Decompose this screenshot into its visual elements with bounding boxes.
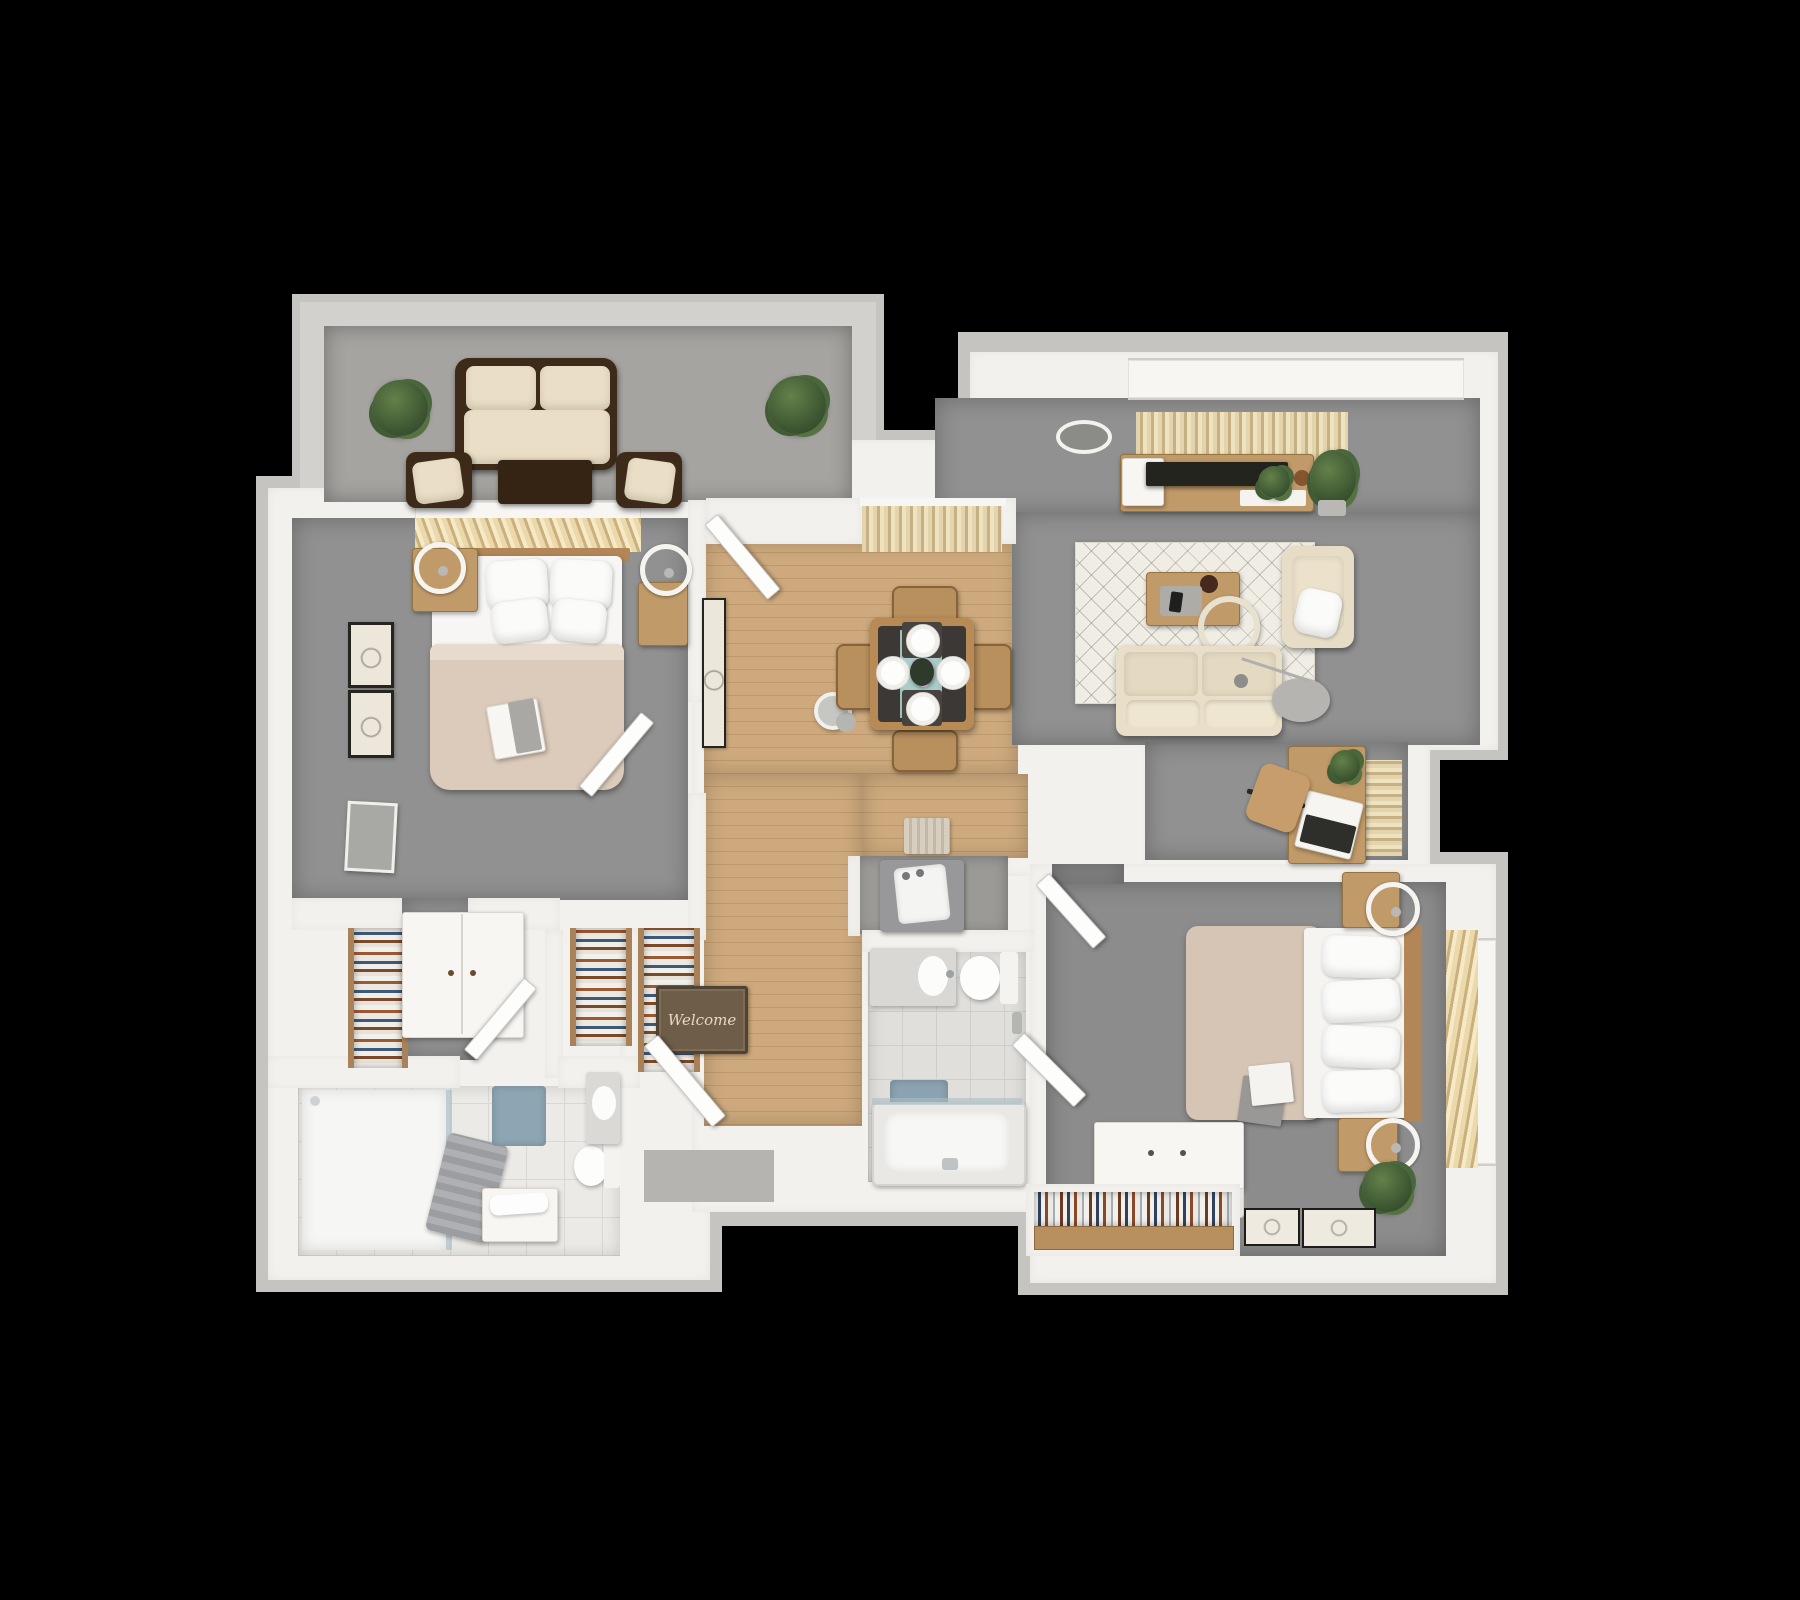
dresser-seam bbox=[461, 914, 463, 1034]
toilet-2 bbox=[960, 956, 1000, 1000]
welcome-mat-text: Welcome bbox=[668, 1011, 736, 1029]
wall bbox=[688, 793, 706, 940]
bed2-pillow bbox=[1321, 1024, 1401, 1070]
balcony-wall bbox=[300, 302, 876, 328]
place-setting-bottom bbox=[906, 692, 940, 726]
flower-vase bbox=[910, 658, 934, 686]
bath-mat bbox=[492, 1086, 546, 1146]
toilet-tank bbox=[604, 1140, 620, 1188]
plant-pot bbox=[1318, 500, 1346, 516]
entry-stoop bbox=[644, 1150, 774, 1202]
duvet-fold bbox=[430, 644, 624, 660]
second-bedroom-doorway bbox=[1052, 864, 1124, 884]
ceiling-light bbox=[1056, 420, 1112, 454]
floor-frame-small bbox=[1244, 1208, 1300, 1246]
shower-head bbox=[310, 1096, 320, 1106]
welcome-mat: Welcome bbox=[656, 986, 748, 1054]
wall bbox=[292, 898, 402, 930]
washer-knob bbox=[916, 869, 924, 877]
bed-pillow bbox=[490, 597, 551, 646]
woven-mat bbox=[904, 818, 950, 854]
toilet bbox=[574, 1146, 608, 1186]
dining-wall-art bbox=[702, 598, 726, 748]
bed2-headboard bbox=[1404, 926, 1422, 1122]
arc-lamp-head bbox=[1234, 674, 1248, 688]
wall-art-top bbox=[348, 622, 394, 688]
sofa-back-cushion bbox=[1124, 652, 1198, 696]
place-setting-right bbox=[936, 656, 970, 690]
bed2-pillow bbox=[1321, 978, 1401, 1024]
toilet-tank-2 bbox=[1000, 952, 1018, 1004]
ring-lamp-right bbox=[640, 544, 692, 596]
sink-2 bbox=[918, 956, 948, 996]
desk-plant bbox=[1330, 750, 1360, 782]
window-blinds bbox=[1446, 930, 1478, 1168]
balcony-wall bbox=[300, 302, 326, 512]
console-plant bbox=[1258, 466, 1290, 498]
closet-bookshelf bbox=[1034, 1192, 1232, 1226]
bed2-pillow bbox=[1321, 1069, 1400, 1114]
pendant-light-shade bbox=[836, 712, 856, 732]
tall-plant bbox=[1310, 450, 1356, 506]
bed-pillow bbox=[550, 597, 608, 644]
tub-faucet bbox=[942, 1158, 958, 1170]
washer-knob bbox=[902, 872, 910, 880]
outdoor-coffee-table bbox=[498, 460, 592, 504]
closet-shelf-front bbox=[1034, 1226, 1234, 1250]
hallway-floor bbox=[704, 774, 862, 1126]
sofa-seat-cushion bbox=[1126, 700, 1200, 728]
floor-frame-large bbox=[1302, 1208, 1376, 1248]
glass-screen bbox=[872, 1098, 1022, 1105]
decor-bowl-dark bbox=[1200, 575, 1218, 593]
bedroom2-plant bbox=[1362, 1162, 1412, 1212]
white-dresser-2 bbox=[1094, 1122, 1244, 1190]
book-on-bed-2 bbox=[1248, 1062, 1294, 1106]
loveseat-back-cushion bbox=[540, 366, 610, 410]
chair-cushion bbox=[623, 457, 676, 505]
decor-bowl bbox=[1294, 470, 1310, 486]
loveseat-seat-cushion bbox=[464, 410, 610, 464]
chair-cushion bbox=[411, 457, 464, 505]
faucet-2 bbox=[946, 970, 954, 978]
dresser-2-knob bbox=[1148, 1150, 1154, 1156]
ring-lamp-left bbox=[414, 542, 466, 594]
dining-chair-bottom bbox=[892, 730, 958, 772]
window-sill bbox=[1476, 938, 1496, 1166]
curtain-rod bbox=[860, 498, 1006, 506]
loveseat-back-cushion bbox=[466, 366, 536, 410]
wall-art-bottom bbox=[348, 690, 394, 758]
leaning-mirror bbox=[344, 801, 398, 874]
dresser-knob bbox=[470, 970, 476, 976]
linen-shelf-middle bbox=[570, 928, 632, 1046]
ring-lamp-top-2 bbox=[1366, 882, 1420, 936]
place-setting-top bbox=[906, 624, 940, 658]
bed2-pillow bbox=[1321, 935, 1400, 980]
window-curtains bbox=[862, 506, 1002, 552]
window-sill bbox=[1128, 358, 1464, 400]
arc-lamp-base bbox=[1272, 678, 1330, 722]
dresser-2-knob bbox=[1180, 1150, 1186, 1156]
linen-shelf-left bbox=[348, 928, 408, 1068]
dining-chair-right bbox=[968, 644, 1012, 710]
sofa-seat-cushion bbox=[1204, 700, 1278, 728]
dresser-knob bbox=[448, 970, 454, 976]
place-setting-left bbox=[876, 656, 910, 690]
wall bbox=[848, 856, 860, 936]
sink bbox=[592, 1086, 616, 1120]
potted-plant-left bbox=[372, 380, 428, 436]
potted-plant-right bbox=[768, 376, 826, 434]
floor-plan: Welcome bbox=[0, 0, 1800, 1600]
desk-curtains bbox=[1362, 760, 1402, 856]
bench-towel bbox=[489, 1192, 548, 1216]
towel-ring bbox=[1012, 1012, 1022, 1034]
